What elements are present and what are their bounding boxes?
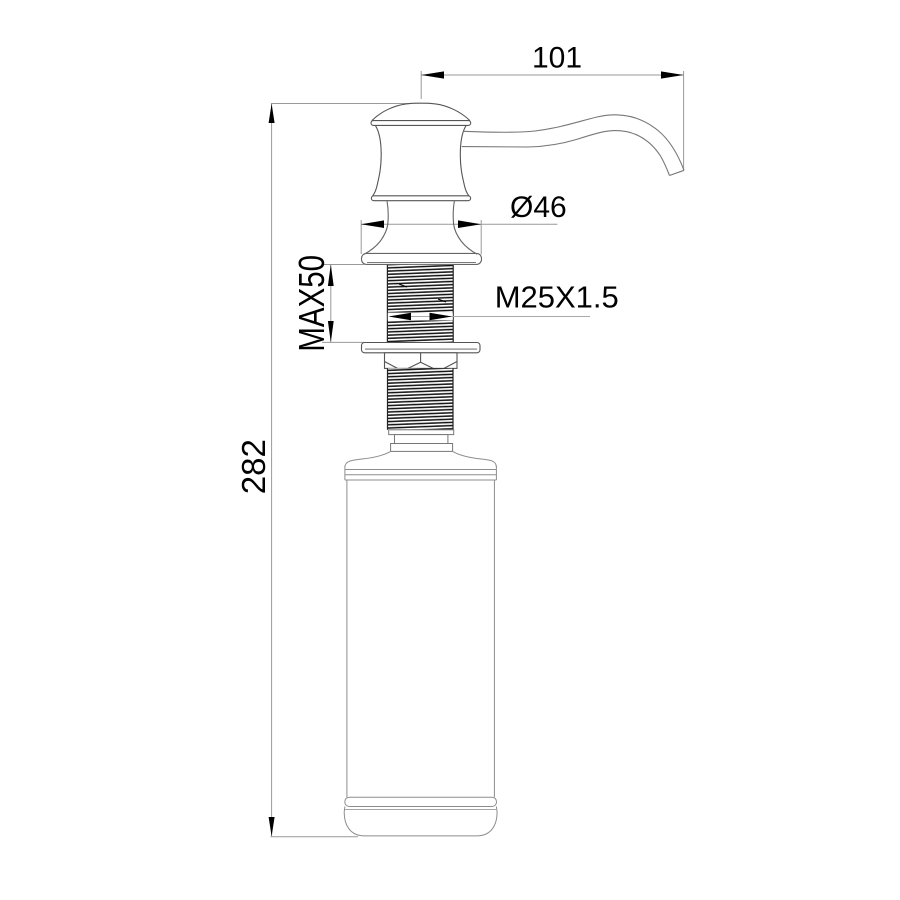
svg-text:MAX50: MAX50 <box>291 255 331 352</box>
svg-text:Ø46: Ø46 <box>510 191 567 224</box>
svg-text:101: 101 <box>532 42 582 75</box>
svg-text:282: 282 <box>235 439 272 494</box>
svg-text:M25X1.5: M25X1.5 <box>495 280 619 315</box>
